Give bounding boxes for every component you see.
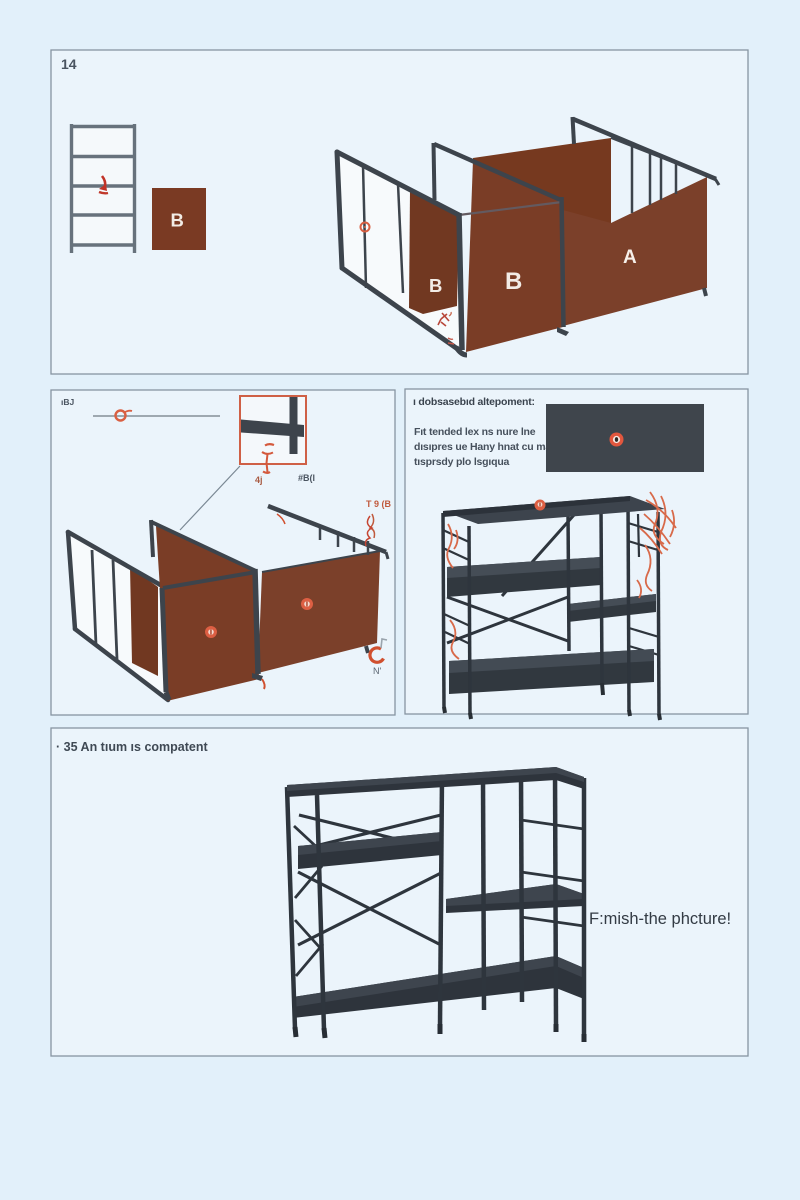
svg-text:· 35 An tıum ıs compatent: · 35 An tıum ıs compatent (56, 740, 208, 754)
svg-text:B: B (429, 275, 442, 296)
svg-text:tısprsdy plo lsgıqua: tısprsdy plo lsgıqua (414, 456, 510, 468)
svg-text:B: B (171, 210, 184, 231)
svg-text:ı dobsasebıd altepoment:: ı dobsasebıd altepoment: (413, 396, 535, 408)
svg-text:ıBJ: ıBJ (61, 397, 75, 407)
svg-text:F:mish-the phcture!: F:mish-the phcture! (589, 910, 731, 928)
svg-text:#B(l: #B(l (298, 473, 315, 483)
svg-text:B: B (505, 268, 522, 295)
svg-text:N': N' (373, 666, 381, 676)
svg-text:Fıt tended lex ns nure lne: Fıt tended lex ns nure lne (414, 426, 536, 438)
svg-text:A: A (623, 247, 637, 268)
svg-text:14: 14 (61, 56, 77, 72)
svg-text:dısıpres ue Hany hnat cu ma: dısıpres ue Hany hnat cu ma (414, 441, 551, 453)
svg-text:T 9 (B: T 9 (B (366, 499, 392, 509)
svg-text:4j: 4j (255, 475, 263, 485)
